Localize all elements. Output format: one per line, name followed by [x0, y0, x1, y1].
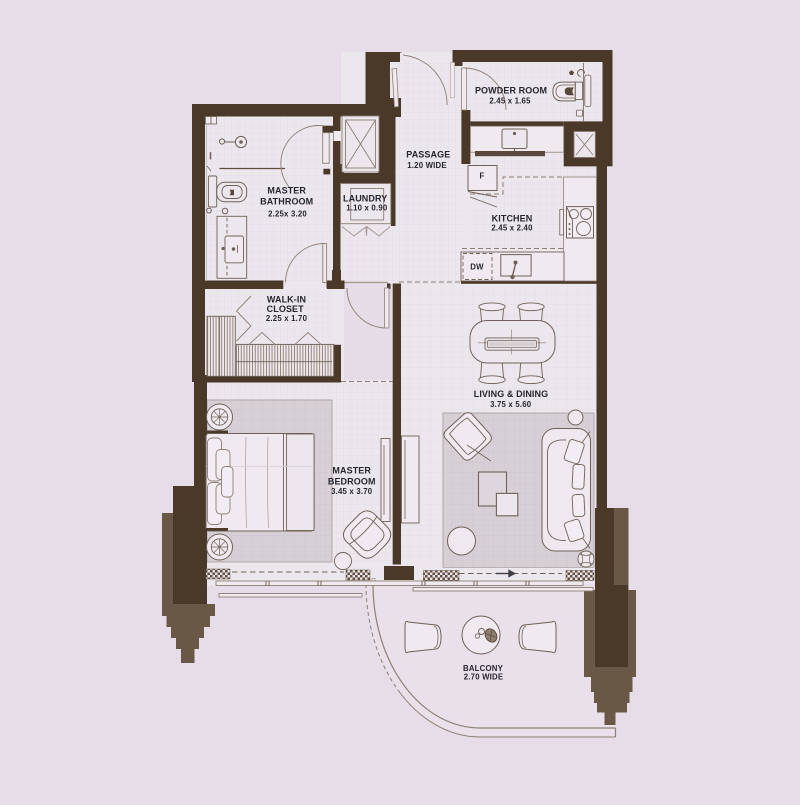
- svg-text:2.25x 3.20: 2.25x 3.20: [268, 209, 307, 218]
- svg-text:LAUNDRY: LAUNDRY: [343, 193, 387, 203]
- svg-text:MASTER: MASTER: [332, 466, 371, 476]
- svg-text:1.10 x 0.90: 1.10 x 0.90: [346, 204, 388, 213]
- svg-text:PASSAGE: PASSAGE: [406, 149, 450, 159]
- svg-text:MASTER: MASTER: [267, 185, 306, 195]
- svg-text:2.45 x 1.65: 2.45 x 1.65: [489, 97, 531, 106]
- svg-text:WALK-IN: WALK-IN: [267, 294, 306, 304]
- svg-text:3.75 x 5.60: 3.75 x 5.60: [490, 400, 532, 409]
- svg-text:1.20 WIDE: 1.20 WIDE: [407, 161, 447, 170]
- svg-text:POWDER ROOM: POWDER ROOM: [475, 86, 547, 96]
- svg-text:BEDROOM: BEDROOM: [328, 477, 376, 487]
- svg-text:LIVING & DINING: LIVING & DINING: [474, 389, 549, 399]
- svg-text:KITCHEN: KITCHEN: [492, 213, 533, 223]
- svg-text:3.45 x 3.70: 3.45 x 3.70: [331, 487, 373, 496]
- svg-text:2.45 x 2.40: 2.45 x 2.40: [491, 224, 533, 233]
- svg-text:2.70 WIDE: 2.70 WIDE: [464, 672, 504, 681]
- svg-text:BATHROOM: BATHROOM: [260, 197, 313, 207]
- svg-text:2.25 x 1.70: 2.25 x 1.70: [266, 314, 308, 323]
- svg-text:CLOSET: CLOSET: [267, 304, 305, 314]
- svg-text:DW: DW: [470, 263, 484, 272]
- svg-text:F: F: [480, 172, 485, 181]
